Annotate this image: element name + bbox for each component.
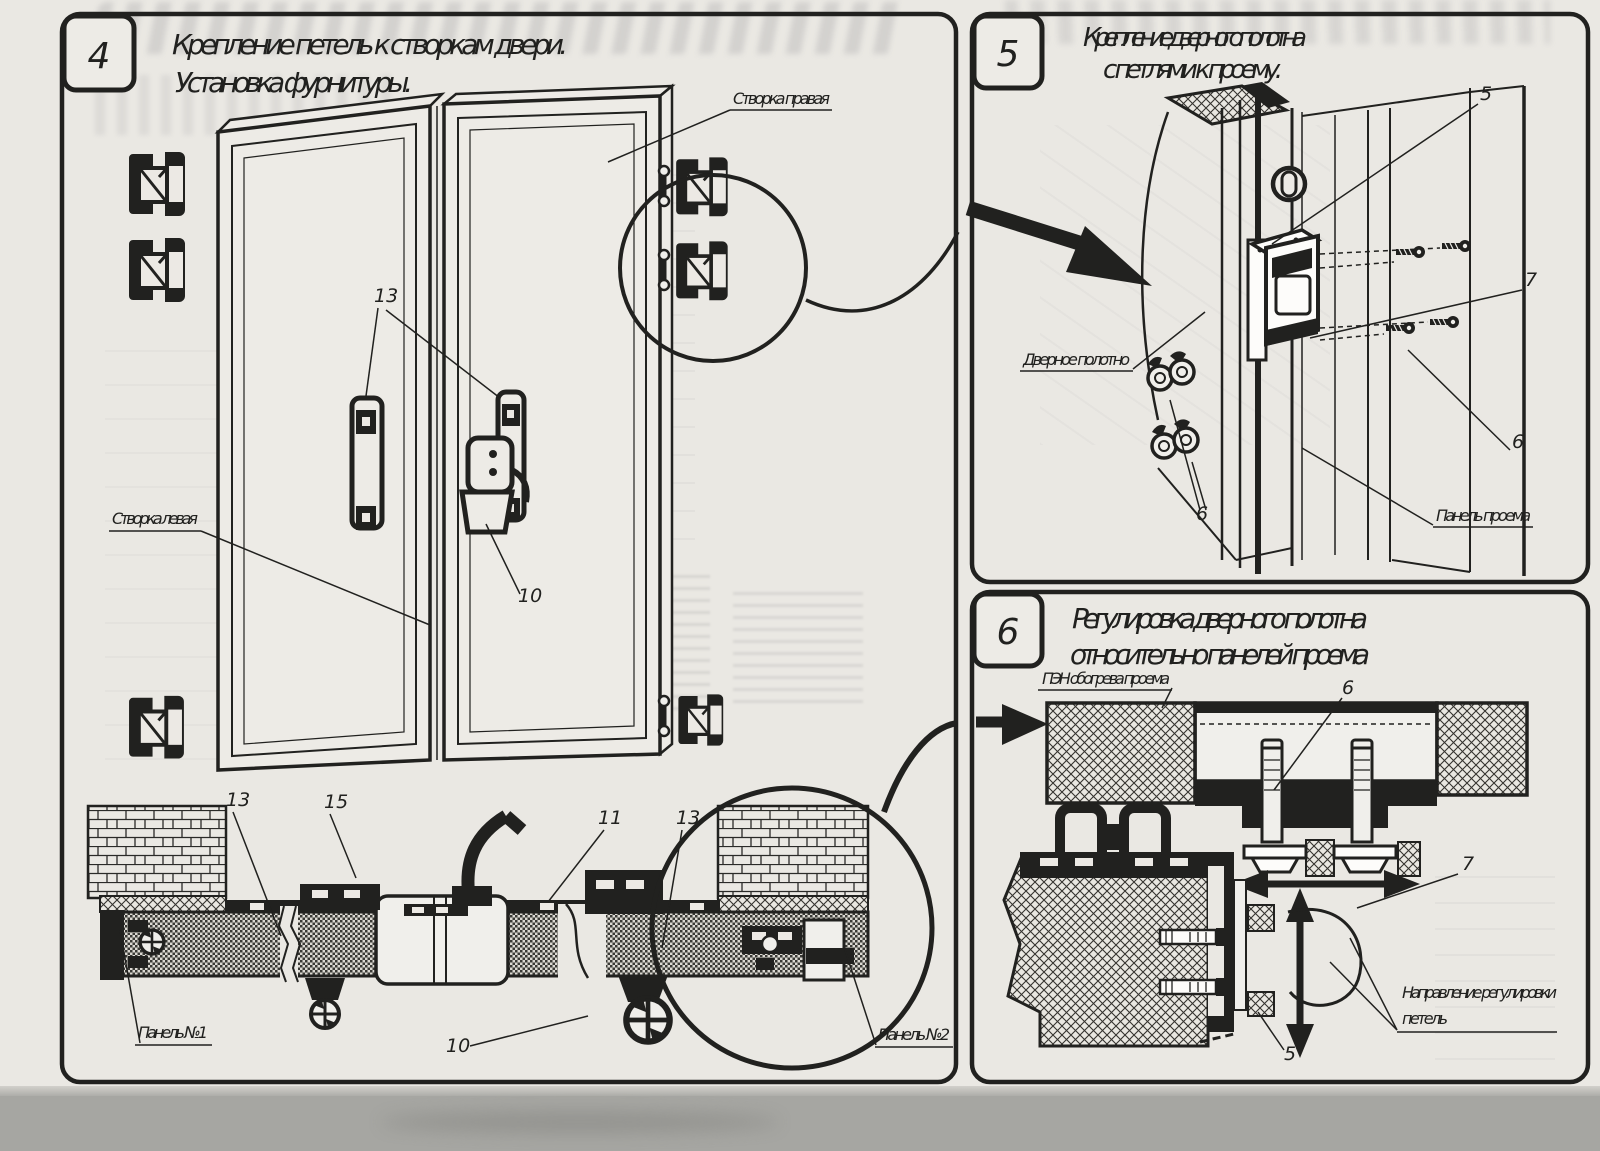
callout-15-section: 15	[324, 791, 348, 813]
svg-text:петель: петель	[1402, 1009, 1448, 1028]
panel-6-title-line2: относительно панелей проема	[1070, 638, 1370, 671]
beam-insulation-right	[1437, 703, 1527, 795]
panel-6: 6 Регулировка дверного полотна относител…	[972, 592, 1588, 1082]
valve-wheel-icon	[626, 998, 669, 1041]
left-leaf	[218, 106, 430, 770]
panel-4-title-line1: Крепление петель к створкам двери.	[172, 28, 568, 61]
beam-middle	[1195, 703, 1437, 781]
svg-text:ПЭН обогрева проема: ПЭН обогрева проема	[1042, 669, 1170, 688]
callout-6-bolt: 6	[1342, 677, 1354, 699]
fixing-screw	[1160, 928, 1230, 946]
screw-icon	[1442, 240, 1471, 252]
svg-text:Панель проема: Панель проема	[1436, 506, 1531, 525]
panel-5-number: 5	[997, 34, 1020, 75]
screw-icon	[1430, 316, 1459, 328]
hinge-to-opening-drawing	[968, 82, 1524, 576]
panel-4: 4 Крепление петель к створкам двери. Уст…	[62, 14, 958, 1082]
label-direction: Направление регулировки петель	[1330, 938, 1557, 1032]
hinge-icon	[678, 694, 723, 745]
svg-text:Створка правая: Створка правая	[733, 89, 830, 108]
scanner-smear	[380, 1112, 780, 1132]
leader-line	[1408, 350, 1510, 450]
washer-plate	[1334, 846, 1396, 872]
svg-text:Панель №1: Панель №1	[138, 1023, 208, 1042]
svg-text:Дверное полотно: Дверное полотно	[1022, 350, 1130, 369]
callout-11-section: 11	[598, 807, 622, 829]
svg-text:Направление регулировки: Направление регулировки	[1402, 983, 1557, 1002]
panel-4-title-line2: Установка фурнитуры.	[175, 66, 413, 99]
bolt-head-icon	[140, 930, 164, 954]
callout-13-section-right: 13	[676, 807, 700, 829]
detail-arrow-head	[1066, 226, 1152, 286]
leader-line	[1310, 290, 1522, 338]
fixing-screw	[1160, 978, 1230, 996]
opening-panel-block	[1004, 856, 1208, 1046]
svg-text:Панель №2: Панель №2	[878, 1025, 950, 1044]
panel-5-title-line1: Крепление дверного полотна	[1083, 23, 1307, 53]
panel-4-number: 4	[88, 36, 111, 77]
door-leaves-drawing	[129, 86, 806, 770]
right-leaf	[444, 96, 660, 760]
label-opening-panel: Панель проема	[1302, 448, 1533, 527]
door-profile-arch	[1060, 808, 1102, 852]
panel-6-title-line1: Регулировка дверного полотна	[1072, 602, 1368, 635]
beam-lower-band	[1195, 781, 1437, 828]
leader-line	[330, 814, 356, 878]
panel-5-title-line2: с петлями к проему.	[1103, 55, 1283, 85]
callout-10-section: 10	[446, 1035, 470, 1057]
beam-insulation-left	[1047, 703, 1195, 803]
callout-7-adjust: 7	[1462, 853, 1474, 875]
leader-line	[1330, 962, 1397, 1030]
scanned-assembly-drawing: 4 Крепление петель к створкам двери. Уст…	[0, 0, 1600, 1151]
detail-arrow-curve-top	[806, 232, 958, 311]
brick-wall-left	[88, 806, 226, 898]
callout-6-screw-right: 6	[1512, 431, 1524, 453]
svg-text:Створка левая: Створка левая	[112, 509, 198, 528]
hinge-icon	[676, 241, 728, 300]
panel-6-number: 6	[997, 612, 1020, 653]
detail-arrow-head	[1002, 704, 1048, 745]
panel-5: 5 Крепление дверного полотна с петлями к…	[968, 14, 1588, 582]
hinge-icon	[129, 152, 185, 216]
door-profile-arch	[1124, 808, 1166, 852]
drawing-canvas: 4 Крепление петель к створкам двери. Уст…	[0, 0, 1600, 1151]
callout-10-latch: 10	[518, 585, 542, 607]
hinge-icon	[129, 238, 185, 302]
hinge-assembly	[1248, 230, 1318, 360]
adjustment-drawing	[976, 703, 1527, 1058]
scanner-background	[0, 1096, 1600, 1151]
leader-line	[1357, 874, 1458, 908]
bolt-washer-pair-icon	[1152, 419, 1198, 458]
adjustment-bolt	[1352, 740, 1372, 842]
callout-5-hinge: 5	[1480, 83, 1492, 105]
callout-5-bottom: 5	[1284, 1043, 1296, 1065]
callout-7-screws: 7	[1525, 269, 1537, 291]
washer-plate	[1244, 846, 1306, 872]
vertical-adjust-arrow	[1286, 888, 1314, 1058]
bolt-washer-pair-icon	[1148, 351, 1194, 390]
screw-icon	[1396, 246, 1425, 258]
callout-6-bolts: 6	[1196, 503, 1208, 525]
hinge-icon	[129, 696, 184, 759]
detail-arrow-curve-bottom	[884, 723, 957, 812]
callout-13-doors: 13	[374, 285, 398, 307]
leader-line	[1258, 1012, 1284, 1050]
leader-line	[1170, 400, 1200, 510]
hinge-icon	[676, 157, 728, 216]
adjustment-bolt	[1262, 740, 1282, 842]
brick-wall-right	[718, 806, 868, 898]
threshold-cross-section	[88, 788, 932, 1068]
caster-wheel-icon	[311, 1000, 339, 1028]
callout-13-section-left: 13	[226, 789, 250, 811]
leader-line	[470, 1016, 588, 1046]
